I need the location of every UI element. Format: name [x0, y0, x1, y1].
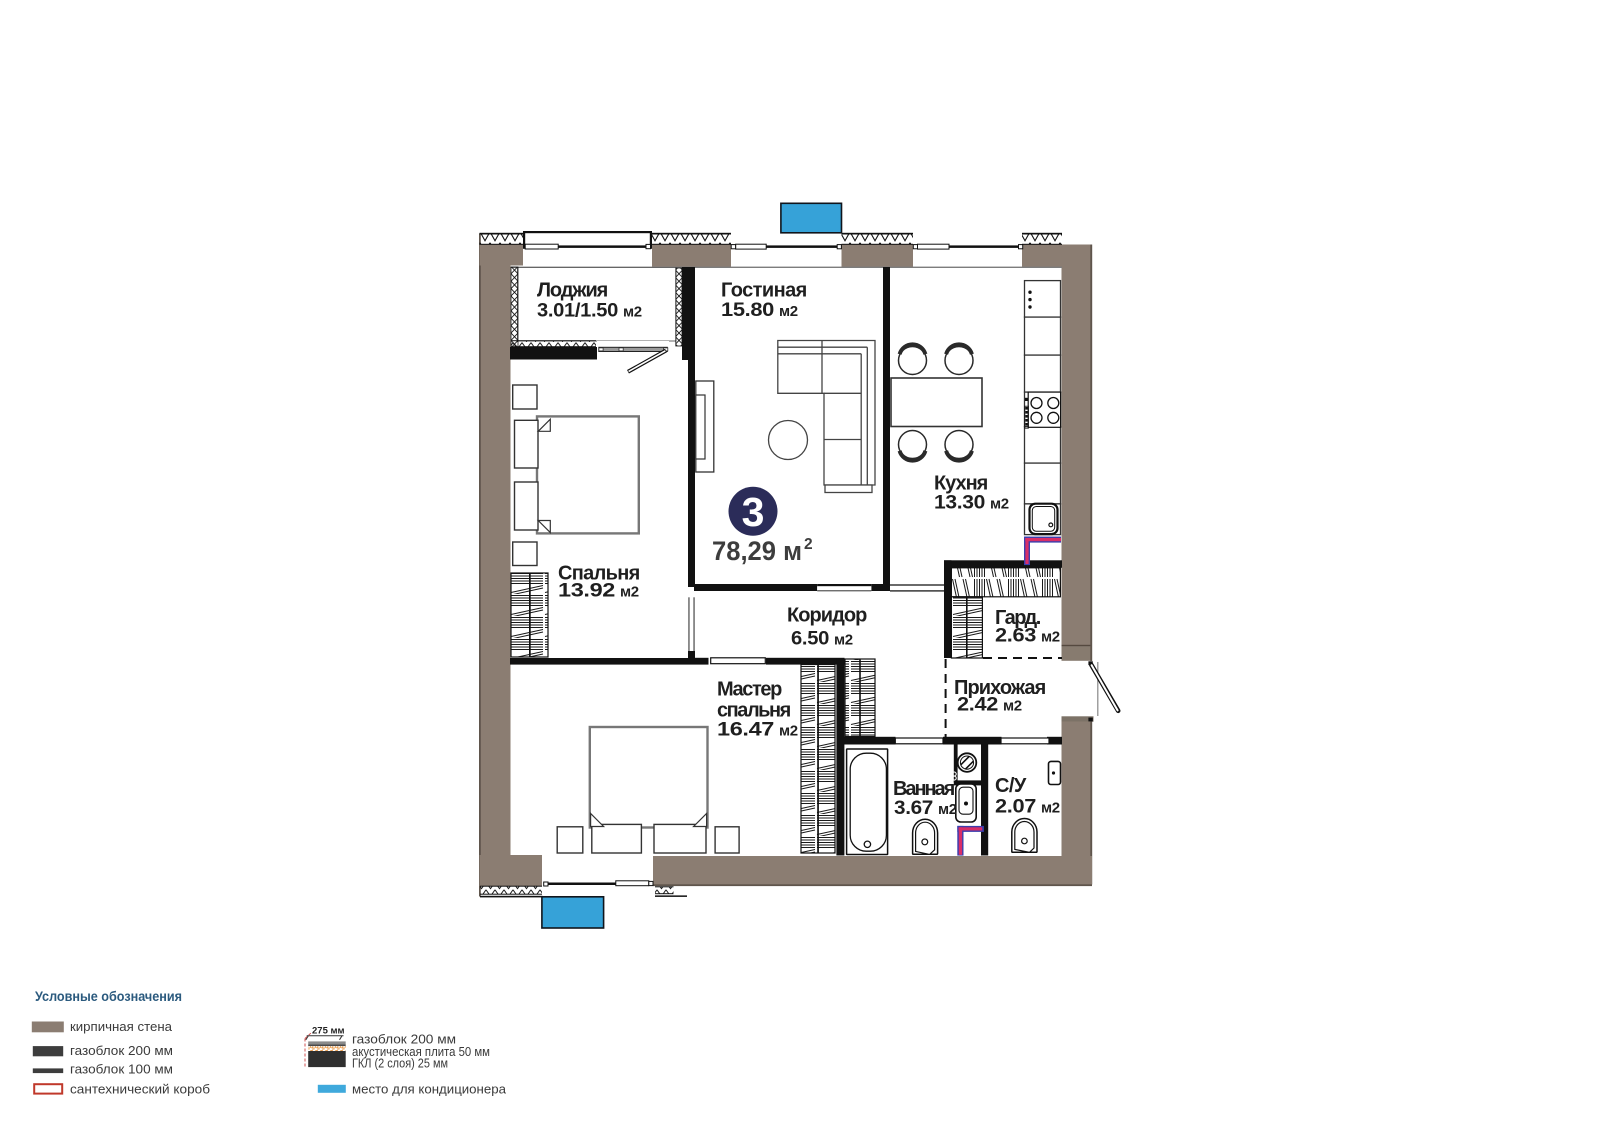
svg-text:Ванная: Ванная [893, 778, 955, 800]
svg-text:газоблок 200 мм: газоблок 200 мм [70, 1043, 173, 1058]
svg-text:Кухня: Кухня [934, 473, 988, 495]
svg-text:место для кондиционера: место для кондиционера [352, 1081, 507, 1096]
svg-text:3.01/1.50 м2: 3.01/1.50 м2 [537, 301, 642, 322]
svg-text:15.80 м2: 15.80 м2 [721, 300, 798, 321]
svg-text:2.42 м2: 2.42 м2 [957, 695, 1022, 716]
svg-text:3.67 м2: 3.67 м2 [894, 798, 957, 819]
svg-text:кирпичная стена: кирпичная стена [70, 1019, 173, 1034]
svg-text:16.47 м2: 16.47 м2 [717, 720, 798, 741]
svg-text:Мастер: Мастер [717, 679, 782, 701]
svg-text:ГКЛ (2 слоя) 25 мм: ГКЛ (2 слоя) 25 мм [352, 1056, 448, 1071]
svg-text:6.50 м2: 6.50 м2 [791, 629, 853, 650]
svg-text:спальня: спальня [717, 700, 791, 722]
svg-text:13.30 м2: 13.30 м2 [934, 493, 1009, 514]
svg-text:С/У: С/У [995, 775, 1027, 797]
svg-text:2.07 м2: 2.07 м2 [995, 797, 1060, 818]
svg-text:3: 3 [742, 489, 765, 535]
svg-text:газоблок 100 мм: газоблок 100 мм [70, 1062, 173, 1077]
svg-text:Коридор: Коридор [787, 605, 867, 627]
svg-text:275 мм: 275 мм [312, 1026, 345, 1037]
svg-text:Гостиная: Гостиная [721, 280, 807, 302]
svg-text:2: 2 [804, 536, 813, 553]
svg-text:Условные обозначения: Условные обозначения [35, 989, 182, 1004]
svg-text:сантехнический короб: сантехнический короб [70, 1082, 210, 1097]
svg-text:2.63 м2: 2.63 м2 [995, 626, 1060, 647]
svg-text:Лоджия: Лоджия [537, 280, 608, 302]
svg-text:13.92 м2: 13.92 м2 [558, 581, 639, 602]
svg-text:78,29 м: 78,29 м [712, 536, 802, 566]
